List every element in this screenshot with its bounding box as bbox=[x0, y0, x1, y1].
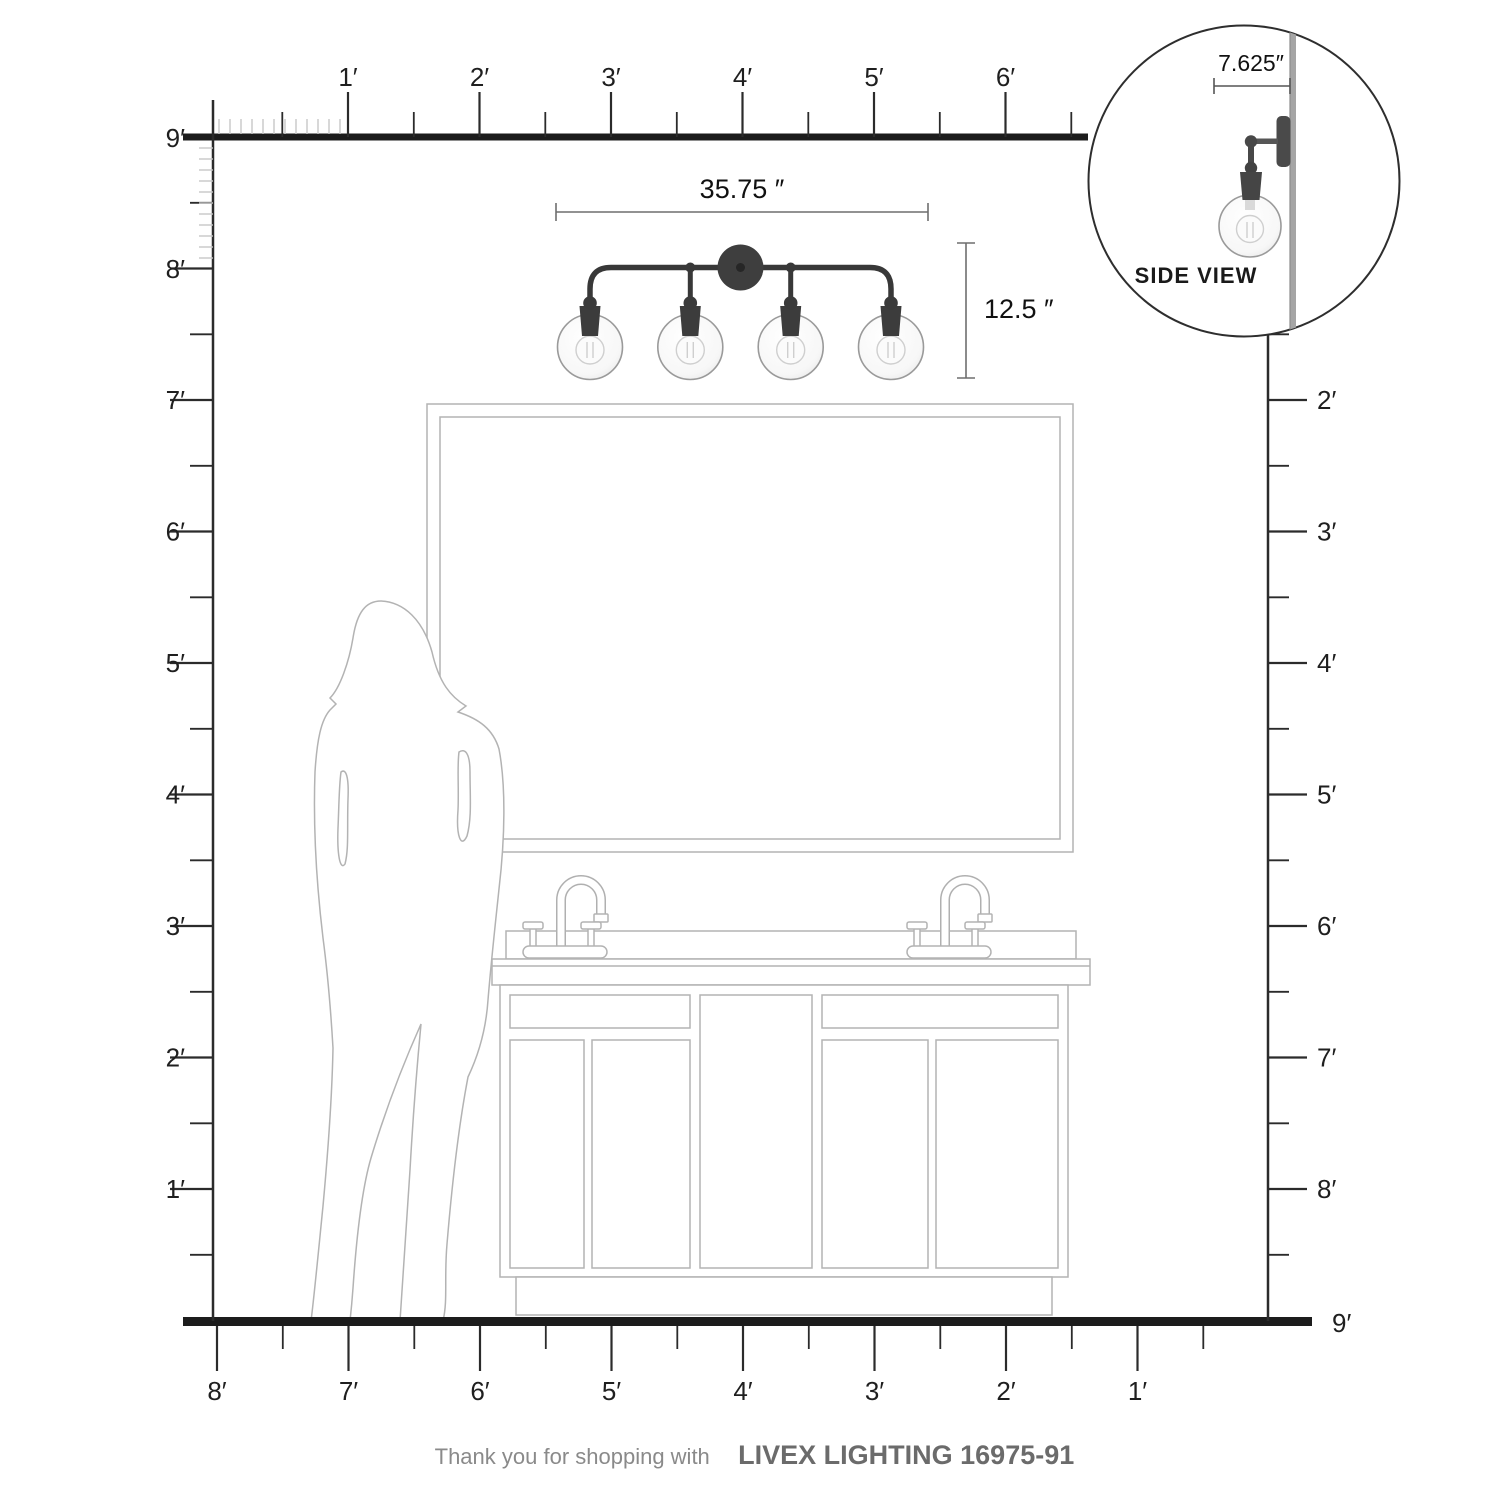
left-label-2ft: 2′ bbox=[166, 1043, 185, 1073]
top-label-1ft: 1′ bbox=[338, 62, 357, 92]
left-label-5ft: 5′ bbox=[166, 648, 185, 678]
right-label-6ft: 6′ bbox=[1317, 911, 1336, 941]
vanity-cabinet bbox=[492, 880, 1090, 1315]
vanity-light-front-view bbox=[558, 245, 924, 380]
right-label-4ft: 4′ bbox=[1317, 648, 1336, 678]
width-dimension bbox=[556, 203, 928, 221]
side-backplate bbox=[1277, 116, 1291, 167]
ruler-right bbox=[1268, 330, 1307, 1321]
floor-line bbox=[183, 1317, 1312, 1326]
handle-stem-left bbox=[530, 928, 536, 948]
top-label-6ft: 6′ bbox=[996, 62, 1015, 92]
ruler-left-labels: 9′ 8′ 7′ 6′ 5′ 4′ 3′ 2′ 1′ bbox=[166, 123, 185, 1204]
cabinet-base bbox=[516, 1277, 1052, 1315]
bottom-label-1ft: 1′ bbox=[1128, 1376, 1147, 1406]
stem-3-joint bbox=[786, 263, 796, 273]
silhouette-outline bbox=[311, 601, 504, 1321]
bottom-label-5ft: 5′ bbox=[602, 1376, 621, 1406]
dimension-diagram: 1′ 2′ 3′ 4′ 5′ 6′ 9′ bbox=[0, 0, 1500, 1500]
right-label-2ft: 2′ bbox=[1317, 385, 1336, 415]
bottom-label-3ft: 3′ bbox=[865, 1376, 884, 1406]
stem-2-joint bbox=[685, 263, 695, 273]
right-label-8ft: 8′ bbox=[1317, 1174, 1336, 1204]
arm-gap-right bbox=[458, 751, 471, 841]
woman-silhouette bbox=[311, 601, 504, 1321]
right-label-5ft: 5′ bbox=[1317, 780, 1336, 810]
left-half-ticks bbox=[190, 203, 213, 1255]
height-dimension-label: 12.5 ″ bbox=[984, 294, 1054, 324]
ruler-bottom bbox=[217, 1326, 1203, 1371]
left-label-6ft: 6′ bbox=[166, 517, 185, 547]
bottom-label-2ft: 2′ bbox=[996, 1376, 1015, 1406]
left-inch-ticks bbox=[199, 148, 213, 258]
right-label-7ft: 7′ bbox=[1317, 1043, 1336, 1073]
left-label-4ft: 4′ bbox=[166, 780, 185, 810]
bottom-label-8ft: 8′ bbox=[207, 1376, 226, 1406]
mirror bbox=[427, 404, 1073, 852]
height-dimension bbox=[957, 243, 975, 378]
handle-cap-left bbox=[523, 922, 543, 929]
left-label-3ft: 3′ bbox=[166, 911, 185, 941]
faucet-right bbox=[907, 880, 992, 958]
faucet-deck bbox=[523, 946, 607, 958]
glass-globes bbox=[558, 315, 924, 380]
ruler-bottom-labels: 8′ 7′ 6′ 5′ 4′ 3′ 2′ 1′ bbox=[207, 1376, 1147, 1406]
left-label-1ft: 1′ bbox=[166, 1174, 185, 1204]
bottom-label-7ft: 7′ bbox=[339, 1376, 358, 1406]
footer-brand-model: LIVEX LIGHTING 16975-91 bbox=[738, 1440, 1074, 1470]
ruler-top bbox=[219, 92, 1071, 137]
right-label-3ft: 3′ bbox=[1317, 517, 1336, 547]
handle-stem-right bbox=[588, 928, 594, 948]
left-label-8ft: 8′ bbox=[166, 254, 185, 284]
top-label-4ft: 4′ bbox=[733, 62, 752, 92]
footer-thankyou-text: Thank you for shopping with bbox=[435, 1444, 716, 1469]
top-inch-ticks bbox=[219, 119, 340, 134]
footer-text: Thank you for shopping with LIVEX LIGHTI… bbox=[412, 1440, 1087, 1470]
bottom-label-6ft: 6′ bbox=[470, 1376, 489, 1406]
handle-cap-right bbox=[581, 922, 601, 929]
ball-joints bbox=[583, 296, 898, 310]
side-view-inset: 7.625″ SIDE VIEW bbox=[1089, 24, 1400, 340]
ruler-right-labels: 2′ 3′ 4′ 5′ 6′ 7′ 8′ 9′ bbox=[1317, 385, 1351, 1338]
bottom-label-4ft: 4′ bbox=[733, 1376, 752, 1406]
left-label-7ft: 7′ bbox=[166, 385, 185, 415]
faucet-aerator bbox=[594, 914, 608, 922]
backplate-knob bbox=[736, 263, 745, 272]
left-label-9ft: 9′ bbox=[166, 123, 185, 153]
top-label-3ft: 3′ bbox=[601, 62, 620, 92]
faucet-left bbox=[523, 880, 608, 958]
mirror-outer-frame bbox=[427, 404, 1073, 852]
right-foot-ticks bbox=[1268, 400, 1307, 1189]
depth-dimension-label: 7.625″ bbox=[1218, 50, 1284, 76]
top-half-ticks bbox=[282, 112, 1071, 137]
ceiling-wall-line bbox=[183, 134, 1088, 141]
side-view-wall bbox=[1290, 24, 1296, 340]
sockets bbox=[580, 306, 902, 336]
side-socket bbox=[1240, 172, 1262, 200]
top-label-2ft: 2′ bbox=[470, 62, 489, 92]
top-label-5ft: 5′ bbox=[864, 62, 883, 92]
side-bulb bbox=[1237, 216, 1264, 243]
side-view-caption: SIDE VIEW bbox=[1135, 263, 1258, 288]
arm-gap-left bbox=[338, 771, 348, 866]
countertop bbox=[492, 959, 1090, 985]
right-label-9ft-floor: 9′ bbox=[1332, 1308, 1351, 1338]
cabinet-body bbox=[500, 985, 1068, 1277]
width-dimension-label: 35.75 ″ bbox=[700, 174, 785, 204]
ruler-top-labels: 1′ 2′ 3′ 4′ 5′ 6′ bbox=[338, 62, 1015, 92]
mirror-inner-frame bbox=[440, 417, 1060, 839]
